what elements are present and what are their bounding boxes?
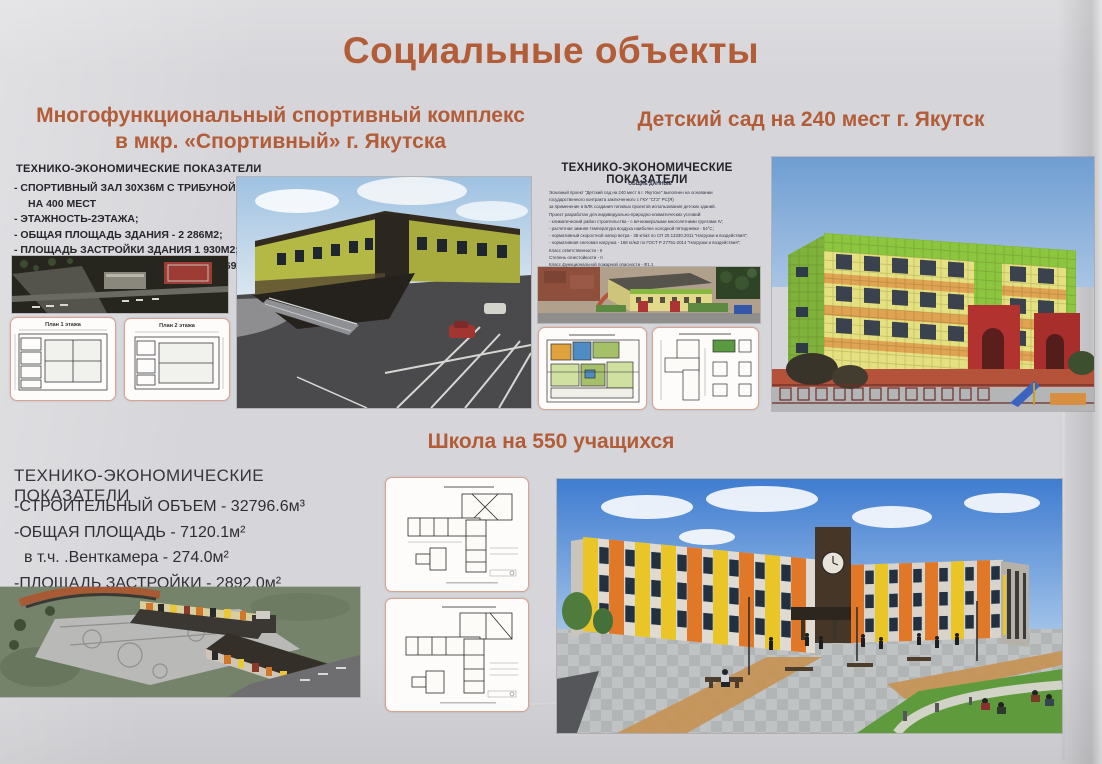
school-indicator: в т.ч. .Венткамера - 274.0м²	[14, 545, 364, 571]
kindergarten-notes-heading: ОБЩИЕ ДАННЫЕ	[549, 181, 751, 187]
sport-section-title: Многофункциональный спортивный комплекс …	[28, 103, 533, 155]
floorplan-drawing	[653, 328, 758, 409]
floorplan-drawing	[125, 319, 229, 400]
kindergarten-floorplan-line	[652, 327, 759, 410]
note-line: Эскизный проект "Детский сад на 240 мест…	[549, 189, 751, 196]
sport-site-aerial-photo	[12, 256, 228, 313]
note-line: - расчетная зимняя температура воздуха н…	[549, 225, 751, 232]
school-indicator: -СТРОИТЕЛЬНЫЙ ОБЪЕМ - 32796.6м³	[14, 494, 364, 520]
note-line: государственного контракта заключенного …	[549, 196, 751, 203]
school-floorplan-2	[385, 598, 529, 712]
sport-complex-render-image	[237, 177, 531, 408]
kindergarten-notes: ОБЩИЕ ДАННЫЕ Эскизный проект "Детский са…	[549, 181, 751, 275]
note-line: за применение в БЛК создания типовых про…	[549, 203, 751, 210]
note-line: Проект разработан для индивидуально-прир…	[549, 211, 751, 218]
kindergarten-main-render	[772, 157, 1094, 411]
school-section-title: Школа на 550 учащихся	[0, 429, 1102, 455]
kindergarten-aerial-image	[538, 267, 760, 323]
sport-floorplan-1-label: План 1 этажа	[11, 322, 115, 328]
sport-complex-render	[237, 177, 531, 408]
floorplan-drawing	[386, 599, 528, 711]
kindergarten-aerial-render	[538, 267, 760, 323]
kindergarten-floorplan-color	[538, 327, 647, 410]
page-title: Социальные объекты	[0, 30, 1102, 72]
note-line: - нормативная снеговая нагрузка - 168 кг…	[549, 239, 751, 246]
kindergarten-section-title: Детский сад на 240 мест г. Якутск	[612, 107, 1010, 133]
note-line: - нормативный скоростной напор ветра - 3…	[549, 232, 751, 239]
sport-tep-heading: ТЕХНИКО-ЭКОНОМИЧЕСКИЕ ПОКАЗАТЕЛИ	[16, 163, 266, 175]
school-main-render	[557, 479, 1062, 733]
note-line: Класс ответственности - II	[549, 247, 751, 254]
sport-title-line1: Многофункциональный спортивный комплекс	[36, 104, 525, 127]
note-line: - климатический район строительства - с …	[549, 218, 751, 225]
sport-indicator: - ОБЩАЯ ПЛОЩАДЬ ЗДАНИЯ - 2 286М2;	[14, 228, 252, 244]
poster-photo: { "title": "Социальные объекты", "colors…	[0, 0, 1102, 764]
school-indicator: -ОБЩАЯ ПЛОЩАДЬ - 7120.1м²	[14, 520, 364, 546]
sport-indicator: - СПОРТИВНЫЙ ЗАЛ 30Х36М С ТРИБУНОЙ	[14, 181, 252, 197]
school-main-image	[557, 479, 1062, 733]
note-line: Степень огнестойкости - II	[549, 254, 751, 261]
sport-floorplan-2: План 2 этажа	[124, 318, 230, 401]
school-aerial-image	[0, 587, 360, 697]
floorplan-drawing	[11, 318, 115, 400]
sport-floorplan-1: План 1 этажа	[10, 317, 116, 401]
sport-title-line2: в мкр. «Спортивный» г. Якутска	[115, 130, 446, 153]
sport-floorplan-2-label: План 2 этажа	[125, 323, 229, 329]
floorplan-drawing	[386, 478, 528, 591]
kindergarten-main-image	[772, 157, 1094, 411]
school-floorplan-1	[385, 477, 529, 592]
school-indicators-list: -СТРОИТЕЛЬНЫЙ ОБЪЕМ - 32796.6м³ -ОБЩАЯ П…	[14, 494, 364, 596]
sport-site-aerial-render	[12, 256, 228, 313]
sport-indicator: - ЭТАЖНОСТЬ-2ЭТАЖА;	[14, 212, 252, 228]
school-aerial-render	[0, 587, 360, 697]
sport-indicator: НА 400 МЕСТ	[14, 197, 252, 213]
floorplan-drawing	[539, 328, 646, 409]
